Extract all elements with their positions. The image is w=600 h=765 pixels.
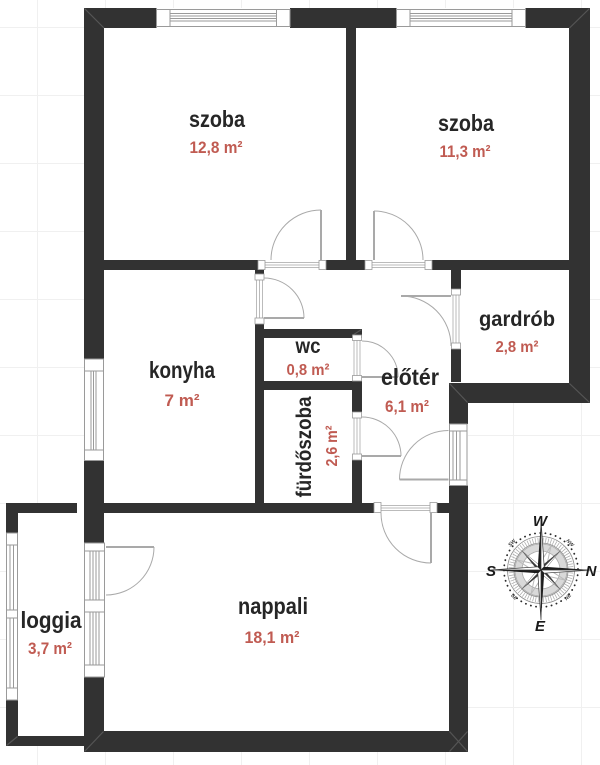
svg-text:0,8 m²: 0,8 m² <box>287 362 330 379</box>
svg-text:gardrób: gardrób <box>479 308 555 331</box>
svg-text:N: N <box>586 563 598 580</box>
svg-text:konyha: konyha <box>149 357 215 383</box>
svg-text:12,8 m²: 12,8 m² <box>190 138 243 157</box>
svg-text:2,8 m²: 2,8 m² <box>496 339 539 356</box>
svg-text:loggia: loggia <box>21 607 82 633</box>
svg-text:18,1 m²: 18,1 m² <box>245 628 300 647</box>
svg-text:11,3 m²: 11,3 m² <box>440 142 491 161</box>
svg-text:nappali: nappali <box>238 593 308 619</box>
svg-text:3,7 m²: 3,7 m² <box>28 639 72 658</box>
svg-text:7 m²: 7 m² <box>165 391 200 410</box>
svg-text:wc: wc <box>295 335 321 358</box>
svg-text:S: S <box>486 563 496 580</box>
svg-text:fürdőszoba: fürdőszoba <box>293 396 316 497</box>
svg-text:szoba: szoba <box>438 110 494 136</box>
svg-text:W: W <box>533 513 549 530</box>
svg-text:6,1 m²: 6,1 m² <box>385 397 429 416</box>
svg-text:előtér: előtér <box>381 364 439 390</box>
svg-text:szoba: szoba <box>189 106 245 132</box>
svg-text:E: E <box>535 618 546 635</box>
svg-text:2,6 m²: 2,6 m² <box>324 426 341 467</box>
